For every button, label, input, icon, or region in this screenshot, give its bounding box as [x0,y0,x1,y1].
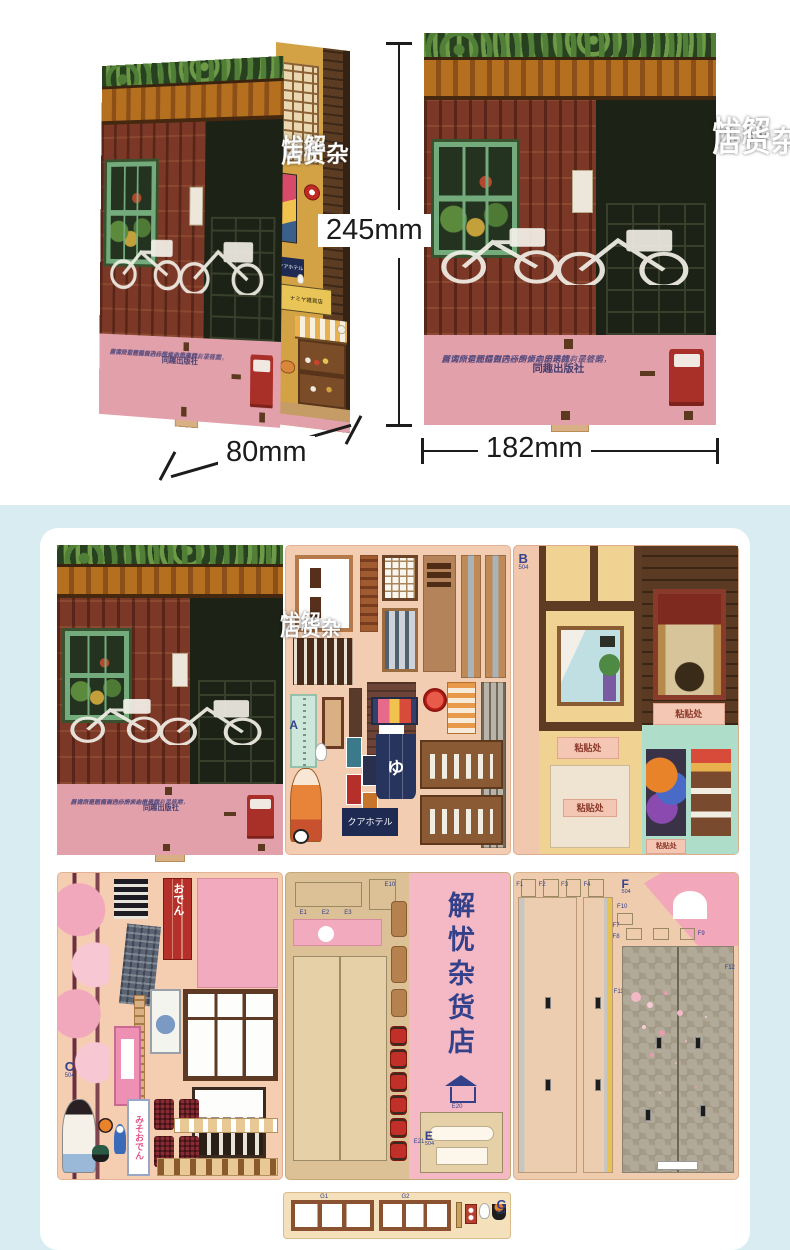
lantern-part [390,1118,407,1138]
quote-strip: 其实所有面临做选择的人心里早就有了答案， 咨询只是想得到内心所倾向的选择。最终的… [424,335,716,425]
window-sign [600,636,615,648]
potted-plant [603,673,616,700]
double-door-part [293,956,387,1161]
die-cut-slot [165,787,172,795]
awning-stripe-part [447,682,476,734]
sheet-f-code: 504 [622,890,631,896]
slatted-window-part [382,608,418,673]
mailbox-illustration [250,354,273,405]
column-part [461,555,481,678]
part-label: E2 [322,910,329,916]
part-label: F10 [617,904,627,910]
roof-tiles [57,564,283,598]
house-icon [450,1087,476,1103]
brick-column-part [360,555,378,632]
storefront-body: 解忧 杂货店 [100,119,284,342]
kit-sheet-printed-cover: 解忧 杂货店 其实所有面临做选择的人心里早就有了答案， [57,545,283,855]
kit-sheet-g: G1 G2 G 504 [283,1192,511,1239]
shop-cabinet-print [691,749,731,835]
sheet-e-code: 504 [425,1142,434,1148]
publisher-name: 同趣出版社 [442,360,676,375]
sakura-petal-scatter [631,992,641,1002]
slot-cut [595,997,601,1009]
sheet-g-code: 504 [497,1211,506,1217]
die-cut-tab [155,855,184,862]
shop-sign: ナミヤ雑貨店 [280,283,332,316]
bath-noren-sticker: ゆ [376,734,416,799]
tall-door-panel-part [583,897,612,1172]
paste-area-label: 粘贴处 [646,839,686,854]
lantern-part [390,1049,407,1069]
framed-room-print [653,589,726,700]
figure-part [92,1145,109,1162]
mailbox-illustration [247,795,274,836]
foliage-strip [424,33,716,57]
part-label: F7 [613,923,620,929]
product-detail-image: 解忧 杂货店 其实所有面临做选择的人心里早就有了答案， [0,0,790,1250]
title-column-left: 杂货店 [279,141,347,166]
miso-oden-banner-part: みそおでん [127,1099,149,1176]
timber-beam [590,546,598,608]
geisha-figure-part [62,1099,96,1172]
height-dim-bottom-cap [386,424,412,427]
quote-strip: 其实所有面临做选择的人心里早就有了答案， 咨询只是想得到内心所倾向的选择。最终的… [99,334,281,428]
teru-teru-bozu-charm [297,274,304,285]
connector-part [391,989,407,1017]
part-label: F9 [698,931,705,937]
height-dimension-label: 245mm [318,214,431,247]
storefront-body: 解忧 杂货店 [424,100,716,335]
interior-window-print [557,626,624,706]
lantern-part [390,1095,407,1115]
slot-cut [545,1079,551,1091]
panda-sticker [293,829,309,844]
shiba-dog-figure [280,360,295,375]
lantern-part [390,1026,407,1046]
paste-area-label: 粘贴处 [563,799,617,817]
window-frame-part [291,1200,375,1231]
kit-section-background: 解忧 杂货店 其实所有面临做选择的人心里早就有了答案， [0,505,790,1250]
arch-cutout [673,891,707,919]
sheet-c-code: 504 [65,1073,75,1079]
slot-cut [595,1079,601,1091]
lantern-stack-part [456,1202,462,1228]
part-label: F1 [516,882,523,888]
mailbox-flap [250,799,271,809]
paste-area-label: 粘贴处 [653,703,725,725]
porch-rail-part [293,638,353,684]
lantern-part [390,1072,407,1092]
round-red-sign [304,183,320,201]
connector-part [391,901,407,938]
shop-shelf [298,339,345,410]
width-dim-right-cap [716,438,719,464]
bicycles-illustration [100,221,282,295]
connector-part [391,946,407,983]
capsule-machine-print [646,749,686,835]
mailbox-flap [674,354,701,367]
mailbox-flap [253,360,271,373]
oden-noren-part: おでん [163,878,192,961]
timber-beam [539,722,642,731]
flat-cover-panel-photo: 解忧 杂货店 其实所有面临做选择的人心里早就有了答案， [424,33,716,425]
width-dimension-label: 182mm [478,432,591,465]
tall-door-panel-part [518,897,576,1172]
slot-cut [545,997,551,1009]
die-cut-tab-row [57,855,283,862]
part-label: F8 [613,934,620,940]
shelf-part [420,795,503,844]
depth-dimension-label: 80mm [218,436,315,469]
timber-beam [634,546,642,731]
part-label: G2 [402,1194,410,1200]
bracket-cut-part [626,928,642,940]
vented-door-part [423,555,457,672]
height-dim-line-upper [398,44,400,210]
cobblestone-ground-part [622,946,734,1172]
die-cut-tab [551,425,589,432]
bicycles-illustration [424,208,716,286]
sheet-e-label: E 504 [425,1130,433,1142]
sheet-g-label: G 504 [497,1198,507,1211]
sheet-b-label: B 504 [518,552,527,565]
sheet-b-letter: B [518,551,527,566]
bracket-cut-part [295,882,362,906]
foliage-strip [57,545,283,564]
sheet-b-code: 504 [518,565,528,571]
slot-cut [695,1037,701,1049]
miso-oden-banner-text: みそおでん [132,1115,145,1160]
kit-sheet-a: ゆ クアホテル A [285,545,511,855]
part-label: G1 [320,1194,328,1200]
height-dim-line-lower [398,258,400,424]
die-cut-slot [684,411,693,421]
red-sign-part [465,1204,477,1224]
wall-note-paper [172,653,188,686]
storefront-body: 解忧 杂货店 [57,598,283,784]
oden-noren-text: おでん [170,883,186,916]
front-cover-angled: 解忧 杂货店 其实所有面临做选择的人心里早就有了答案， [99,56,284,428]
part-label: E20 [452,1104,463,1110]
trim-strip-part [174,1118,277,1133]
bracket-cut-part [653,928,669,940]
roof-tiles [102,78,284,125]
sheet-f-label: F 504 [622,878,629,890]
die-cut-slot [258,844,265,852]
pink-bar-part [293,919,383,947]
spine-title-area: 解忧杂货店 [425,891,492,1081]
lantern-part [390,1141,407,1161]
assembled-book-nook-photo: 解忧 杂货店 其实所有面临做选择的人心里早就有了答案， [58,22,344,454]
die-cut-slot [183,342,189,351]
sheet-a-label: A [289,718,298,732]
trim-strip-part [157,1158,278,1176]
die-cut-slot [181,407,186,416]
depth-dim-line-left [171,461,222,478]
small-door-part [322,697,344,749]
book-nook-cover-art: 解忧 杂货店 其实所有面临做选择的人心里早就有了答案， [424,33,716,425]
pink-door-part [114,1026,141,1106]
slot-cut [700,1105,706,1117]
large-window-part [183,989,277,1081]
roof-tiles [424,57,716,100]
wall-note-paper [190,187,203,226]
poster-sticker [346,774,362,805]
sheet-c-letter: C [65,1059,74,1074]
title-column-left: 杂货店 [278,618,339,639]
slot-cut [656,1037,662,1049]
lattice-grid-part [382,555,418,601]
die-cut-slot [163,844,170,852]
part-label: F4 [583,882,590,888]
timber-beam [539,546,547,731]
red-lantern-sticker [423,688,447,712]
wall-note-paper [572,170,593,212]
die-cut-tab-row [424,425,716,432]
part-label: F2 [539,882,546,888]
title-column-left: 杂货店 [710,126,790,156]
part-label: E1 [299,910,306,916]
kit-sheet-e: E1 E2 E3 E10 解忧杂货店 E20 [285,872,511,1180]
die-cut-slot [259,413,265,423]
mailbox-illustration [669,349,704,401]
die-cut-slot [561,411,570,421]
poster-sticker [346,737,362,768]
die-cut-slot [231,374,240,380]
part-label: F3 [561,882,568,888]
kit-sheets-card: 解忧 杂货店 其实所有面临做选择的人心里早就有了答案， [40,528,750,1250]
window-frame-part [379,1200,451,1231]
book-nook-cover-art: 解忧 杂货店 其实所有面临做选择的人心里早就有了答案， [57,545,283,855]
small-lantern-part [98,1118,113,1133]
rabbit-sticker [315,743,327,761]
sheet-c-label: C 504 [65,1060,74,1073]
cushion-part [154,1099,174,1130]
book-nook-cover-art: 解忧 杂货店 其实所有面临做选择的人心里早就有了答案， [99,56,284,428]
paste-area-label: 粘贴处 [557,737,620,759]
kit-sheet-c: おでん みそおでん [57,872,283,1180]
timber-beam [539,601,642,610]
kit-sheet-b: 粘贴处 粘贴处 粘贴处 粘贴处 B 504 [513,545,739,855]
rabbit-part [479,1203,490,1219]
part-label: F12 [725,965,735,971]
part-label: E3 [344,910,351,916]
printed-sign-part [371,697,418,725]
die-cut-slot [564,339,573,349]
slot-cut [645,1109,651,1121]
spine-title-text: 解忧杂货店 [439,891,478,1061]
part-label: E10 [385,882,396,888]
slot-cut-white [657,1161,697,1170]
washer-part [150,989,181,1053]
quote-strip: 其实所有面临做选择的人心里早就有了答案， 咨询只是想得到内心所倾向的选择。最终的… [57,784,283,855]
pink-panel-part [197,878,278,988]
black-slat-part [114,879,148,919]
column-part [485,555,505,678]
publisher-name: 同趣出版社 [71,803,252,813]
wood-plank-area [642,546,738,725]
hotel-sign-sticker: クアホテル [342,808,398,836]
shelf-part [420,740,503,789]
bicycles-illustration [57,683,283,744]
koinobori-part [114,1124,126,1154]
bracket-cut-part [680,928,696,940]
part-label: E21 [414,1139,425,1145]
kit-sheet-f: F1 F2 F3 F4 F 504 F10 F7 F8 F9 [513,872,739,1180]
